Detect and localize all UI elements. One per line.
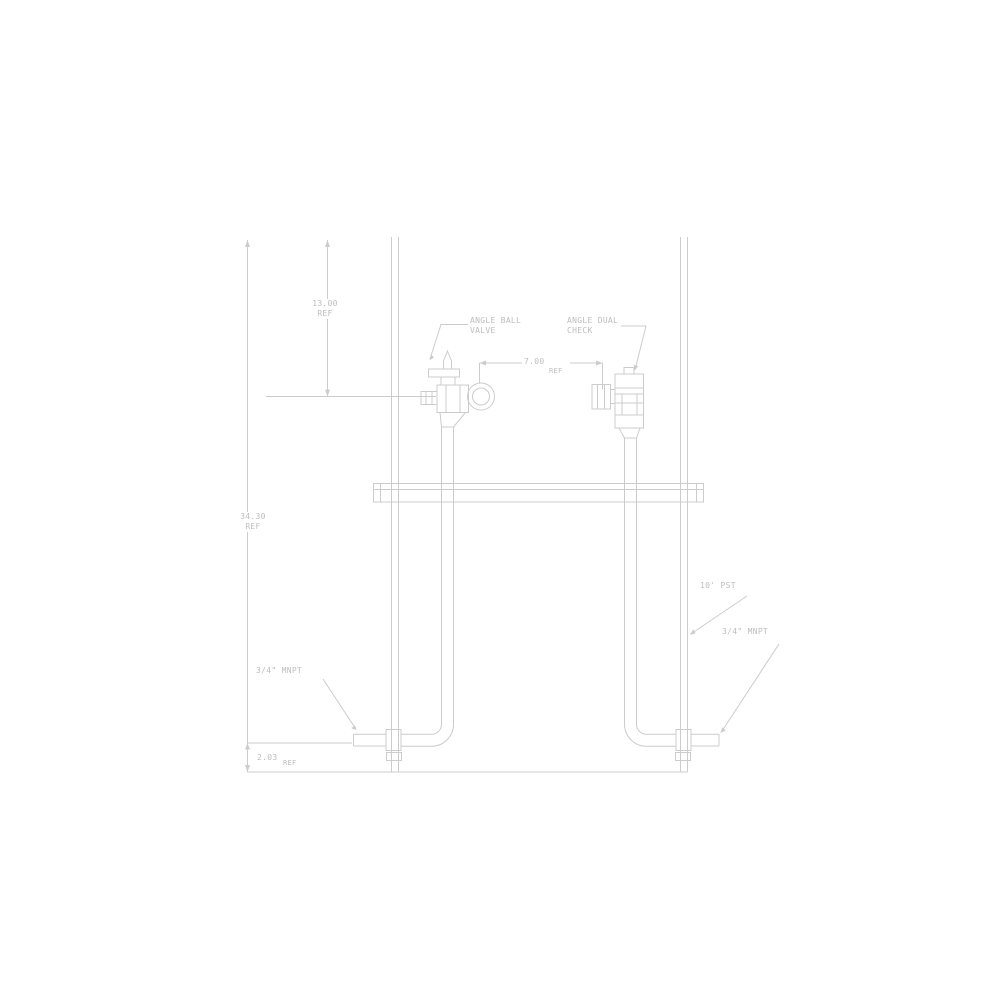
drawing-canvas: ANGLE BALL VALVE ANGLE DUAL CHECK 13.00 … (0, 0, 998, 1000)
riser-right (625, 438, 677, 746)
dim-meter-spread-ref-label: REF (549, 367, 563, 375)
dim-base-offset-label: 2.03 (256, 753, 278, 763)
angle-dual-check-label: ANGLE DUAL CHECK (567, 316, 618, 336)
riser-left (401, 427, 454, 746)
dim-overall-height-label: 34.30 REF (234, 512, 272, 532)
inlet-thread-label: 3/4" MNPT (256, 666, 302, 676)
outlet-thread-label: 3/4" MNPT (722, 627, 768, 637)
meter-coupling-left (468, 383, 495, 410)
angle-ball-valve (421, 351, 469, 427)
dim-meter-spread-label: 7.00 (523, 357, 545, 367)
setter-line-art (0, 0, 998, 1000)
dim-base-offset-ref-label: REF (283, 759, 297, 767)
bottom-inlet-fitting (354, 730, 402, 761)
support-tube-left (392, 237, 399, 772)
angle-dual-check (592, 368, 644, 439)
dimension-lines (245, 240, 688, 772)
support-tube-label: 10' PST (700, 581, 736, 591)
bottom-outlet-fitting (676, 730, 720, 761)
crossbar-bracket (374, 484, 704, 503)
support-tube-right (681, 237, 688, 772)
angle-ball-valve-label: ANGLE BALL VALVE (470, 316, 521, 336)
dim-valve-height-label: 13.00 REF (308, 299, 342, 319)
